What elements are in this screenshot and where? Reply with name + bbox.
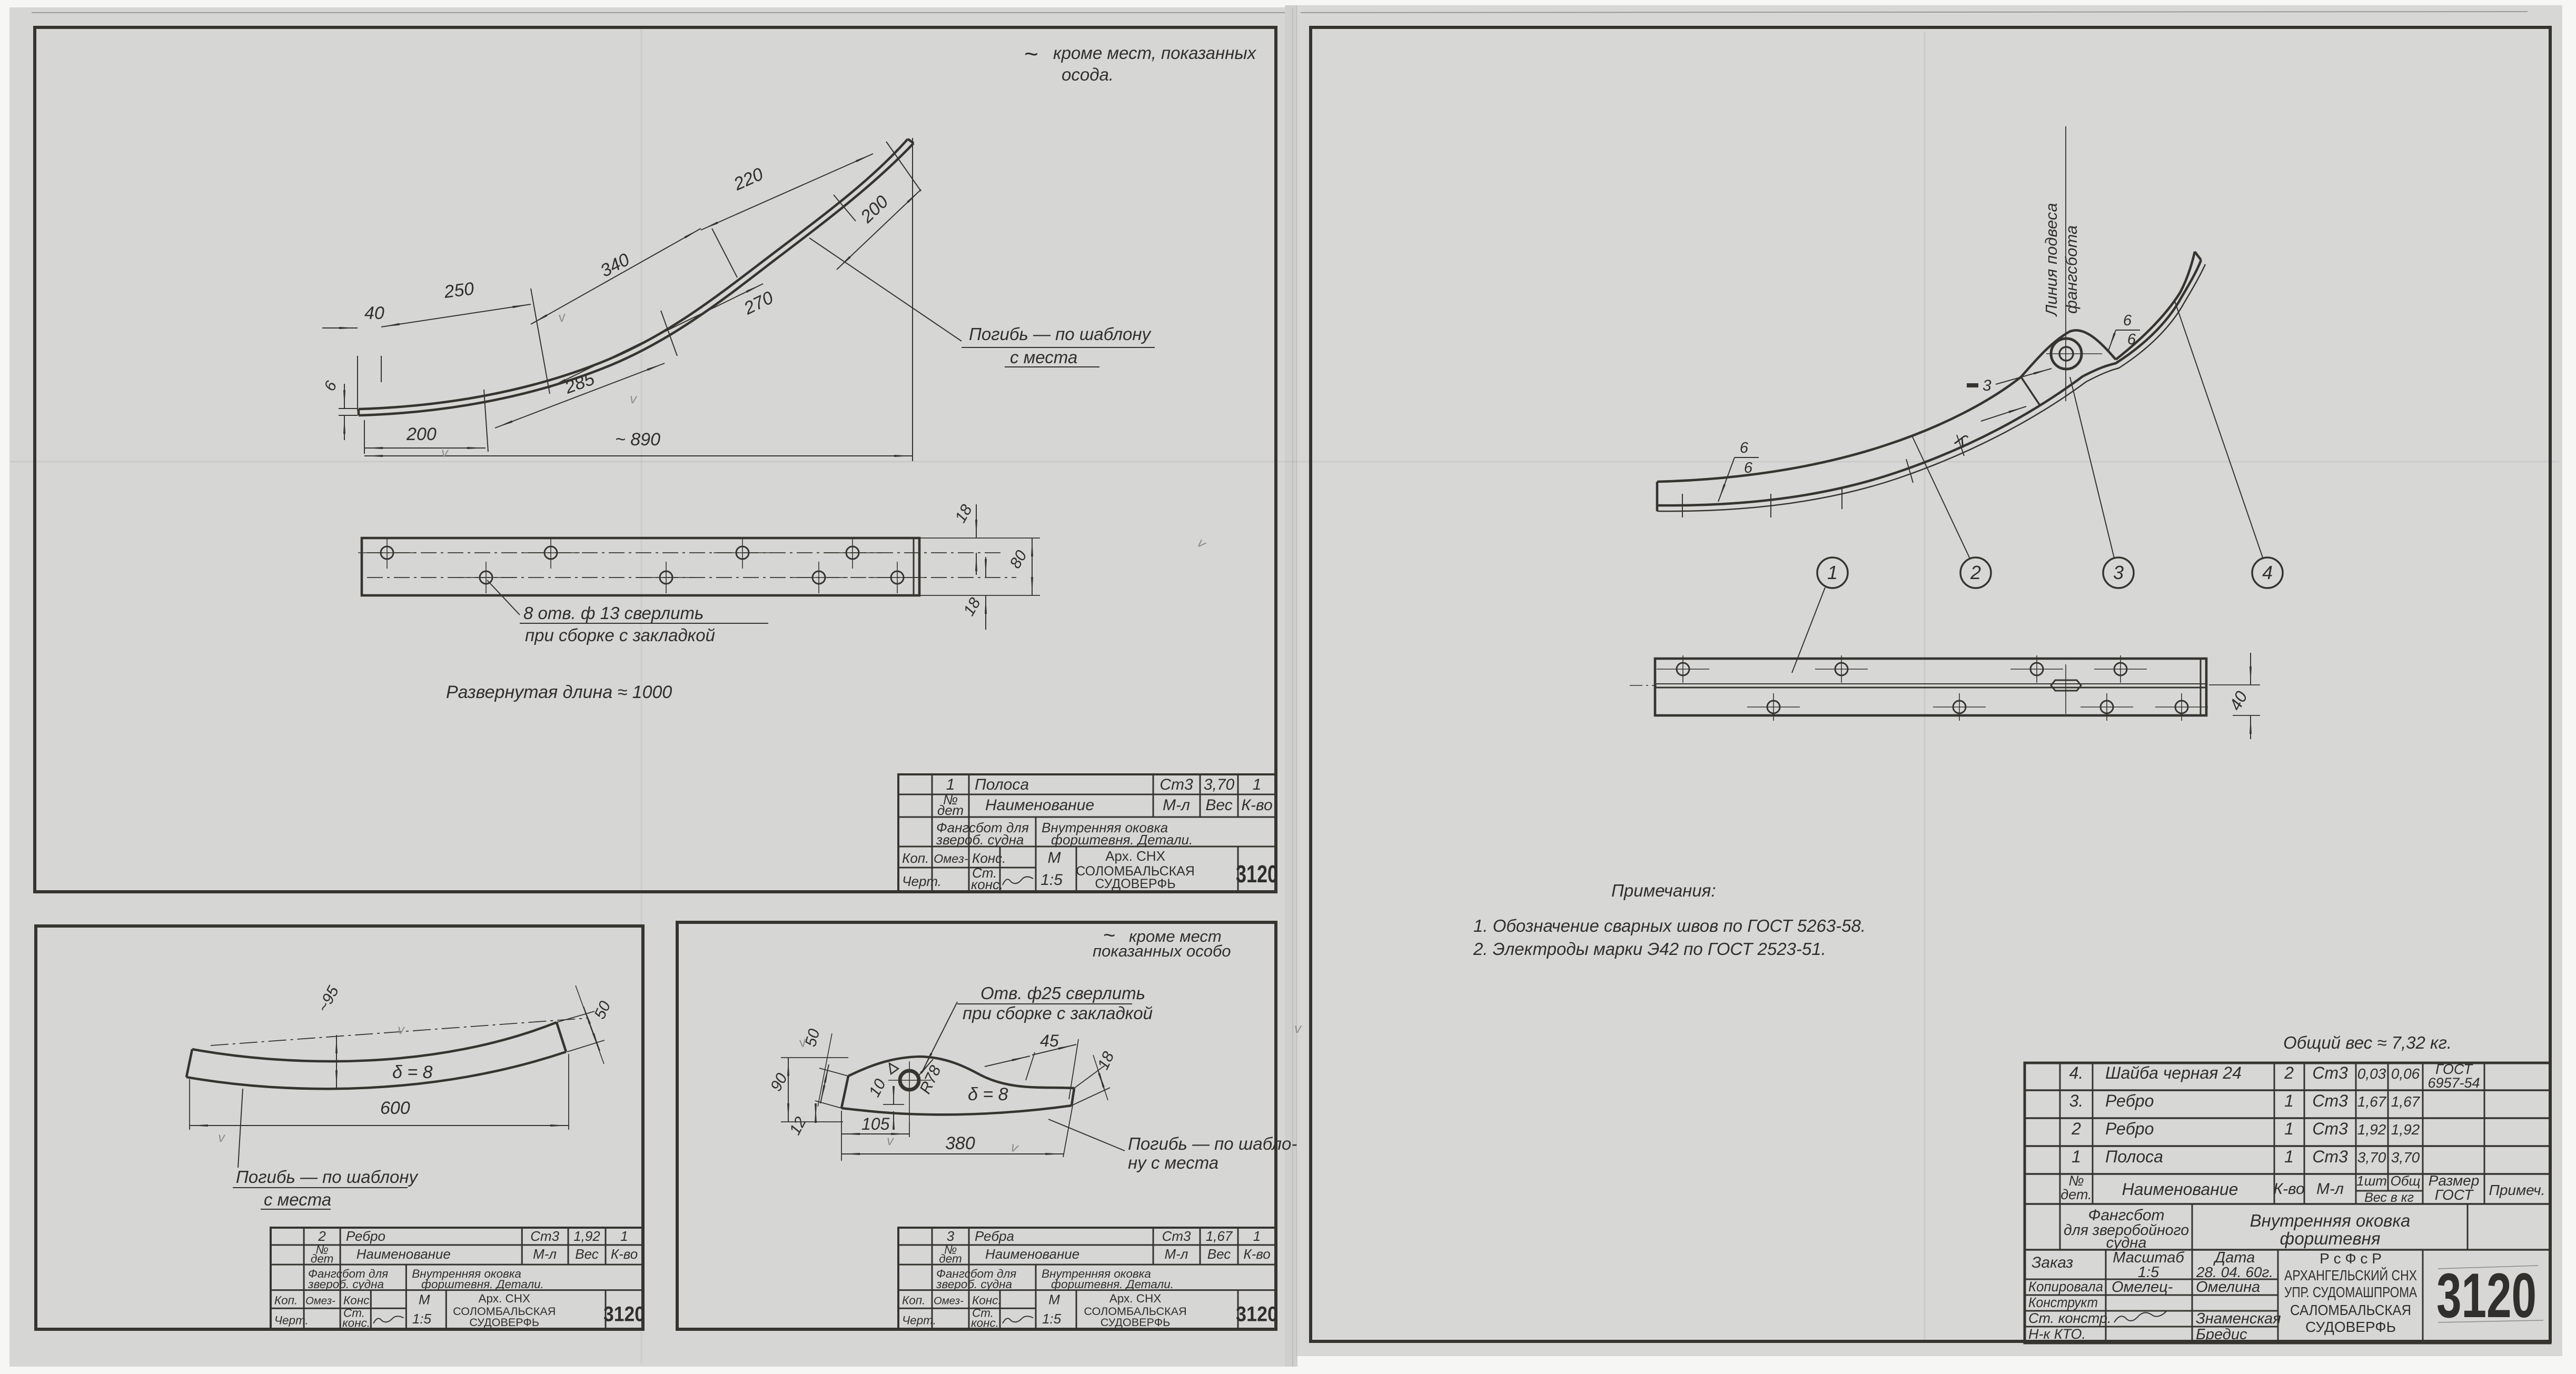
- svg-text:Примечания:: Примечания:: [1611, 881, 1716, 900]
- svg-text:Черт.: Черт.: [274, 1313, 309, 1327]
- svg-text:с места: с места: [1010, 347, 1077, 367]
- svg-text:СУДОВЕРФЬ: СУДОВЕРФЬ: [1101, 1316, 1171, 1329]
- svg-text:САЛОМБАЛЬСКАЯ: САЛОМБАЛЬСКАЯ: [2290, 1302, 2411, 1318]
- svg-text:показанных особо: показанных особо: [1093, 942, 1231, 960]
- svg-text:Ст. констр.: Ст. констр.: [2028, 1310, 2112, 1326]
- svg-text:1: 1: [2284, 1091, 2294, 1110]
- svg-text:М: М: [419, 1291, 430, 1307]
- svg-text:~ 890: ~ 890: [615, 430, 660, 450]
- svg-text:v: v: [1294, 1020, 1302, 1036]
- svg-text:СУДОВЕРФЬ: СУДОВЕРФЬ: [1095, 877, 1175, 891]
- svg-text:Коп.: Коп.: [274, 1293, 298, 1307]
- svg-text:Ст3: Ст3: [2312, 1063, 2348, 1082]
- svg-text:1: 1: [1827, 562, 1838, 583]
- svg-text:1: 1: [2284, 1147, 2294, 1166]
- svg-text:Наименование: Наименование: [356, 1246, 451, 1262]
- svg-text:с места: с места: [264, 1190, 331, 1209]
- svg-text:Полоса: Полоса: [2105, 1147, 2163, 1166]
- svg-text:Черт.: Черт.: [902, 1313, 936, 1327]
- svg-text:Р с Ф с Р: Р с Ф с Р: [2320, 1250, 2382, 1267]
- svg-text:4: 4: [2262, 562, 2273, 583]
- svg-text:45: 45: [1040, 1031, 1059, 1050]
- svg-text:Ст3: Ст3: [1162, 1228, 1191, 1244]
- svg-text:Бредис: Бредис: [2196, 1326, 2247, 1343]
- svg-text:Ст3: Ст3: [1160, 776, 1193, 793]
- svg-text:2: 2: [318, 1228, 326, 1244]
- svg-text:1:5: 1:5: [1042, 1311, 1062, 1327]
- svg-text:Ребро: Ребро: [2105, 1119, 2154, 1138]
- svg-text:v: v: [887, 1132, 895, 1148]
- svg-text:1,92: 1,92: [2357, 1121, 2386, 1138]
- svg-text:Общий вес ≈ 7,32 кг.: Общий вес ≈ 7,32 кг.: [2283, 1033, 2452, 1052]
- svg-text:Общ: Общ: [2391, 1173, 2421, 1189]
- svg-text:3: 3: [1983, 377, 1992, 394]
- svg-text:дет: дет: [939, 1252, 962, 1266]
- svg-text:0,06: 0,06: [2391, 1066, 2420, 1082]
- svg-text:ну с места: ну с места: [1128, 1153, 1218, 1172]
- svg-text:4.: 4.: [2069, 1063, 2084, 1082]
- svg-text:v: v: [630, 391, 638, 406]
- svg-text:Наименование: Наименование: [985, 1246, 1079, 1262]
- svg-text:дет.: дет.: [2060, 1187, 2092, 1202]
- svg-text:1: 1: [946, 776, 955, 793]
- svg-text:Копировала: Копировала: [2028, 1279, 2103, 1295]
- svg-text:1: 1: [620, 1228, 628, 1244]
- svg-text:1шт: 1шт: [2356, 1173, 2387, 1189]
- svg-text:28. 04. 60г.: 28. 04. 60г.: [2196, 1264, 2273, 1280]
- svg-text:3.: 3.: [2069, 1091, 2084, 1110]
- svg-text:6: 6: [2123, 312, 2132, 329]
- svg-text:Заказ: Заказ: [2032, 1254, 2073, 1271]
- svg-text:6957-54: 6957-54: [2428, 1075, 2480, 1091]
- svg-text:М-л: М-л: [1163, 796, 1190, 814]
- svg-text:Арх. СНХ: Арх. СНХ: [1109, 1292, 1162, 1305]
- svg-text:Омелец-: Омелец-: [2112, 1279, 2173, 1296]
- svg-text:Конс.: Конс.: [972, 850, 1006, 866]
- svg-text:40: 40: [364, 303, 384, 323]
- svg-text:Погибь — по шаблону: Погибь — по шаблону: [236, 1167, 419, 1187]
- svg-text:1: 1: [1253, 776, 1262, 793]
- svg-text:v: v: [441, 444, 449, 460]
- svg-text:АРХАНГЕЛЬСКИЙ СНХ: АРХАНГЕЛЬСКИЙ СНХ: [2284, 1267, 2417, 1283]
- svg-text:Ребро: Ребро: [2105, 1091, 2154, 1110]
- svg-text:К-во: К-во: [2273, 1180, 2304, 1198]
- svg-text:2: 2: [1970, 562, 1981, 583]
- svg-text:Арх. СНХ: Арх. СНХ: [478, 1292, 530, 1305]
- svg-text:Внутренняя оковка: Внутренняя оковка: [2250, 1211, 2411, 1230]
- svg-text:Примеч.: Примеч.: [2489, 1182, 2545, 1198]
- svg-text:Вес: Вес: [575, 1246, 598, 1262]
- svg-text:фангсбота: фангсбота: [2062, 225, 2080, 314]
- svg-text:Омез-: Омез-: [934, 852, 968, 865]
- svg-text:1:5: 1:5: [412, 1311, 432, 1327]
- svg-text:Полоса: Полоса: [975, 776, 1029, 793]
- svg-text:Линия подвеса: Линия подвеса: [2042, 203, 2060, 317]
- svg-text:3120: 3120: [603, 1302, 645, 1326]
- svg-text:Отв. ф25 сверлить: Отв. ф25 сверлить: [980, 983, 1145, 1003]
- svg-text:М-л: М-л: [2316, 1180, 2344, 1198]
- svg-text:~: ~: [1024, 40, 1038, 67]
- svg-text:600: 600: [380, 1098, 410, 1118]
- svg-text:Конс.: Конс.: [972, 1293, 1002, 1307]
- svg-text:Знаменская: Знаменская: [2196, 1310, 2281, 1327]
- svg-text:3,70: 3,70: [1204, 776, 1235, 793]
- svg-text:Ст3: Ст3: [2312, 1147, 2348, 1166]
- svg-text:К-во: К-во: [1241, 796, 1272, 814]
- svg-text:Вес: Вес: [1207, 1246, 1231, 1262]
- svg-text:СУДОВЕРФЬ: СУДОВЕРФЬ: [2305, 1319, 2396, 1335]
- svg-text:М: М: [1048, 849, 1061, 867]
- svg-text:1: 1: [2072, 1147, 2081, 1166]
- svg-text:Ребра: Ребра: [975, 1228, 1014, 1244]
- svg-text:осода.: осода.: [1062, 65, 1114, 84]
- svg-text:форштевня. Детали.: форштевня. Детали.: [421, 1278, 544, 1291]
- svg-text:Погибь — по шабло-: Погибь — по шабло-: [1128, 1134, 1297, 1153]
- svg-text:8 отв. ф 13 сверлить: 8 отв. ф 13 сверлить: [523, 603, 704, 623]
- svg-text:Погибь — по шаблону: Погибь — по шаблону: [969, 324, 1152, 344]
- svg-text:200: 200: [406, 424, 437, 444]
- svg-text:3120: 3120: [1236, 1302, 1278, 1326]
- svg-text:дет: дет: [311, 1252, 333, 1266]
- svg-text:1,67: 1,67: [1206, 1228, 1233, 1244]
- svg-text:1,67: 1,67: [2357, 1093, 2387, 1110]
- svg-text:1:5: 1:5: [1041, 871, 1063, 889]
- svg-text:2: 2: [2284, 1063, 2294, 1082]
- svg-text:380: 380: [945, 1133, 975, 1153]
- svg-text:1. Обозначение сварных шво: 1. Обозначение сварных швов по ГОСТ 5263…: [1473, 916, 1866, 935]
- svg-text:звероб. судна: звероб. судна: [308, 1278, 384, 1291]
- svg-text:δ = 8: δ = 8: [392, 1062, 433, 1082]
- svg-text:Шайба черная 24: Шайба черная 24: [2105, 1063, 2242, 1082]
- svg-text:Ребро: Ребро: [346, 1228, 385, 1244]
- svg-text:v: v: [218, 1129, 226, 1145]
- svg-text:2: 2: [2071, 1119, 2081, 1138]
- svg-text:δ = 8: δ = 8: [968, 1084, 1008, 1104]
- svg-text:Ст3: Ст3: [2312, 1091, 2348, 1110]
- svg-text:кроме мест, показанных: кроме мест, показанных: [1053, 43, 1257, 63]
- svg-text:3,70: 3,70: [2391, 1149, 2420, 1166]
- svg-text:Ст3: Ст3: [2312, 1119, 2348, 1138]
- svg-text:СУДОВЕРФЬ: СУДОВЕРФЬ: [469, 1316, 539, 1329]
- svg-text:М-л: М-л: [533, 1246, 557, 1262]
- svg-text:форштевня: форштевня: [2280, 1229, 2381, 1248]
- svg-text:при сборке с закладкой: при сборке с закладкой: [963, 1003, 1153, 1023]
- svg-text:3120: 3120: [2436, 1260, 2537, 1331]
- svg-text:0,03: 0,03: [2357, 1066, 2386, 1082]
- svg-text:6: 6: [1740, 440, 1749, 456]
- svg-text:Коп.: Коп.: [902, 1293, 925, 1307]
- svg-text:конс.: конс.: [971, 877, 1003, 892]
- svg-text:дет: дет: [937, 802, 964, 818]
- svg-text:конс.: конс.: [971, 1317, 999, 1330]
- svg-text:1,92: 1,92: [573, 1228, 600, 1244]
- svg-text:1,92: 1,92: [2391, 1121, 2420, 1138]
- svg-text:К-во: К-во: [1243, 1246, 1270, 1262]
- svg-text:К-во: К-во: [611, 1246, 638, 1262]
- svg-text:Вес в кг: Вес в кг: [2364, 1190, 2414, 1205]
- svg-text:1,67: 1,67: [2391, 1093, 2421, 1110]
- svg-text:Вес: Вес: [1205, 796, 1232, 814]
- svg-text:звероб. судна: звероб. судна: [936, 1278, 1012, 1291]
- svg-text:Конс.: Конс.: [343, 1293, 373, 1307]
- svg-text:Омез-: Омез-: [934, 1295, 964, 1307]
- svg-text:звероб. судна: звероб. судна: [936, 832, 1024, 848]
- svg-text:Ст3: Ст3: [530, 1228, 559, 1244]
- svg-text:Арх. СНХ: Арх. СНХ: [1105, 848, 1165, 864]
- svg-text:Наименование: Наименование: [2122, 1180, 2238, 1199]
- svg-text:Развернутая длина ≈ 1000: Развернутая длина ≈ 1000: [446, 682, 672, 702]
- svg-text:250: 250: [442, 278, 475, 302]
- svg-text:УПР. СУДОМАШПРОМА: УПР. СУДОМАШПРОМА: [2284, 1284, 2417, 1300]
- svg-text:Черт.: Черт.: [902, 873, 942, 889]
- svg-text:6: 6: [2127, 331, 2136, 348]
- svg-text:форштевня. Детали.: форштевня. Детали.: [1051, 832, 1193, 848]
- svg-text:3: 3: [947, 1228, 955, 1244]
- svg-text:ГОСТ: ГОСТ: [2435, 1187, 2474, 1203]
- svg-text:2. Электроды марки Э42: 2. Электроды марки Э42 по ГОСТ 2523-51.: [1473, 939, 1826, 959]
- svg-text:М-л: М-л: [1165, 1246, 1188, 1262]
- svg-text:конс.: конс.: [342, 1317, 370, 1330]
- svg-text:3,70: 3,70: [2357, 1149, 2386, 1166]
- svg-text:Н-к КТО.: Н-к КТО.: [2028, 1326, 2086, 1342]
- svg-text:1: 1: [1253, 1228, 1261, 1244]
- svg-text:Омез-: Омез-: [305, 1295, 335, 1307]
- svg-text:при сборке с закладкой: при сборке с закладкой: [525, 625, 715, 645]
- svg-text:Конструкт: Конструкт: [2028, 1295, 2098, 1310]
- svg-text:1: 1: [2284, 1119, 2294, 1138]
- svg-text:Омелина: Омелина: [2196, 1279, 2260, 1296]
- svg-text:105: 105: [861, 1114, 890, 1133]
- svg-text:6: 6: [1744, 460, 1753, 476]
- svg-text:v: v: [398, 1021, 405, 1037]
- svg-text:3: 3: [2113, 562, 2124, 583]
- svg-text:3120: 3120: [1236, 860, 1278, 888]
- svg-text:Коп.: Коп.: [902, 850, 929, 866]
- svg-text:Наименование: Наименование: [985, 796, 1094, 814]
- svg-text:М: М: [1048, 1291, 1060, 1307]
- svg-text:форштевня. Детали.: форштевня. Детали.: [1051, 1278, 1174, 1291]
